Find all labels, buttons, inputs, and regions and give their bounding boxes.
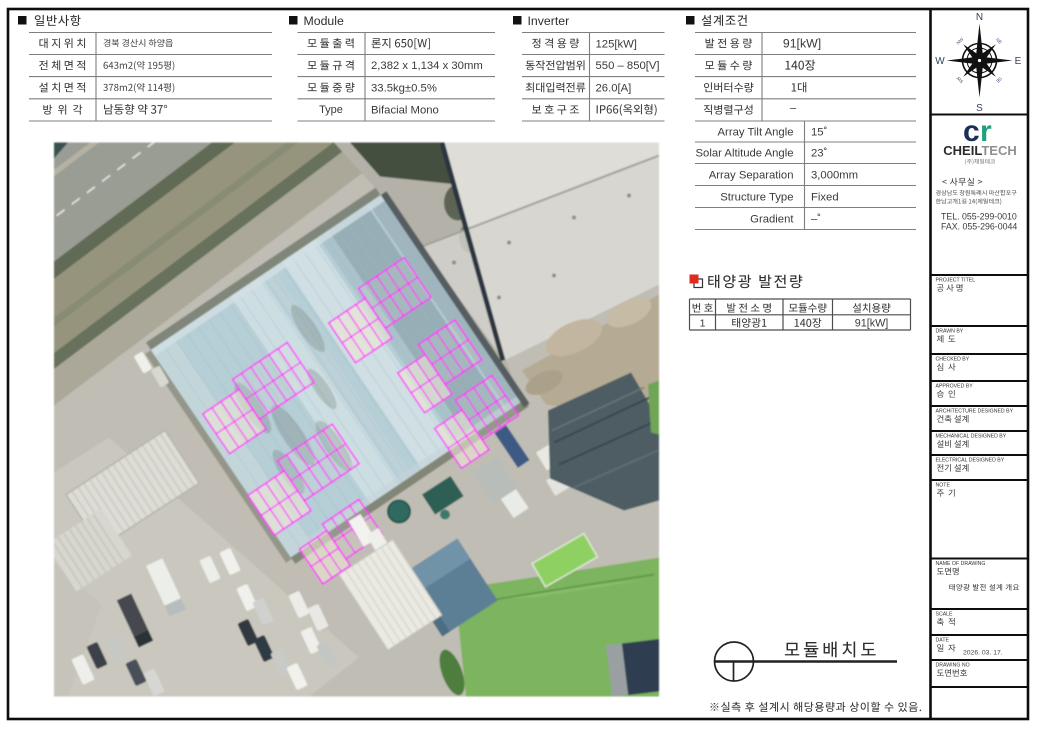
svg-text:W: W: [935, 56, 945, 67]
svg-text:Solar Altitude Angle: Solar Altitude Angle: [696, 148, 794, 160]
svg-text:ARCHITECTURE DESIGNED BY: ARCHITECTURE DESIGNED BY: [936, 409, 1014, 415]
svg-text:26.0[A]: 26.0[A]: [596, 82, 632, 94]
svg-text:Gradient: Gradient: [750, 213, 794, 225]
svg-text:Array Separation: Array Separation: [709, 169, 794, 181]
svg-text:91[kW]: 91[kW]: [783, 37, 821, 51]
svg-text:FAX. 055-296-0044: FAX. 055-296-0044: [941, 222, 1017, 232]
svg-text:125[kW]: 125[kW]: [596, 38, 637, 50]
svg-text:DATE: DATE: [936, 638, 950, 644]
svg-text:ELECTRICAL DESIGNED BY: ELECTRICAL DESIGNED BY: [936, 458, 1005, 464]
svg-text:E: E: [1015, 56, 1022, 67]
svg-text:550 – 850[V]: 550 – 850[V]: [596, 60, 660, 72]
svg-text:SW: SW: [955, 75, 964, 84]
svg-text:Structure Type: Structure Type: [720, 191, 793, 203]
svg-text:DRAWING NO: DRAWING NO: [936, 663, 970, 669]
svg-text:3,000mm: 3,000mm: [811, 169, 858, 181]
svg-text:DRAWN BY: DRAWN BY: [936, 329, 964, 335]
svg-text:CHECKED BY: CHECKED BY: [936, 357, 970, 363]
svg-text:1: 1: [700, 318, 706, 330]
svg-text:–˚: –˚: [811, 213, 821, 225]
svg-text:91[kW]: 91[kW]: [855, 318, 889, 330]
svg-text:NOTE: NOTE: [936, 483, 951, 489]
svg-text:Array Tilt Angle: Array Tilt Angle: [718, 126, 794, 138]
svg-text:–: –: [790, 103, 797, 115]
svg-text:Type: Type: [319, 104, 343, 116]
svg-text:SE: SE: [995, 76, 1003, 84]
svg-text:Inverter: Inverter: [528, 14, 570, 28]
svg-text:MECHANICAL DESIGNED BY: MECHANICAL DESIGNED BY: [936, 434, 1007, 440]
svg-text:TEL. 055-299-0010: TEL. 055-299-0010: [941, 212, 1017, 222]
svg-text:2026. 03. 17.: 2026. 03. 17.: [963, 650, 1003, 657]
svg-text:2,382 x 1,134 x 30mm: 2,382 x 1,134 x 30mm: [371, 60, 483, 72]
svg-text:SCALE: SCALE: [936, 612, 954, 618]
svg-text:N: N: [976, 12, 983, 23]
svg-text:S: S: [976, 103, 983, 114]
svg-text:APPROVED BY: APPROVED BY: [936, 384, 974, 390]
svg-text:NAME OF DRAWING: NAME OF DRAWING: [936, 561, 986, 567]
svg-text:CHEILTECH: CHEILTECH: [943, 143, 1016, 158]
svg-text:15˚: 15˚: [811, 126, 827, 138]
svg-text:Fixed: Fixed: [811, 191, 839, 203]
svg-text:33.5kg±0.5%: 33.5kg±0.5%: [371, 82, 437, 94]
svg-text:Module: Module: [304, 14, 344, 28]
svg-text:PROJECT TITEL: PROJECT TITEL: [936, 278, 976, 284]
svg-text:NE: NE: [995, 37, 1003, 45]
svg-text:NW: NW: [956, 36, 965, 45]
svg-text:23˚: 23˚: [811, 148, 827, 160]
svg-text:Bifacial Mono: Bifacial Mono: [371, 105, 439, 117]
